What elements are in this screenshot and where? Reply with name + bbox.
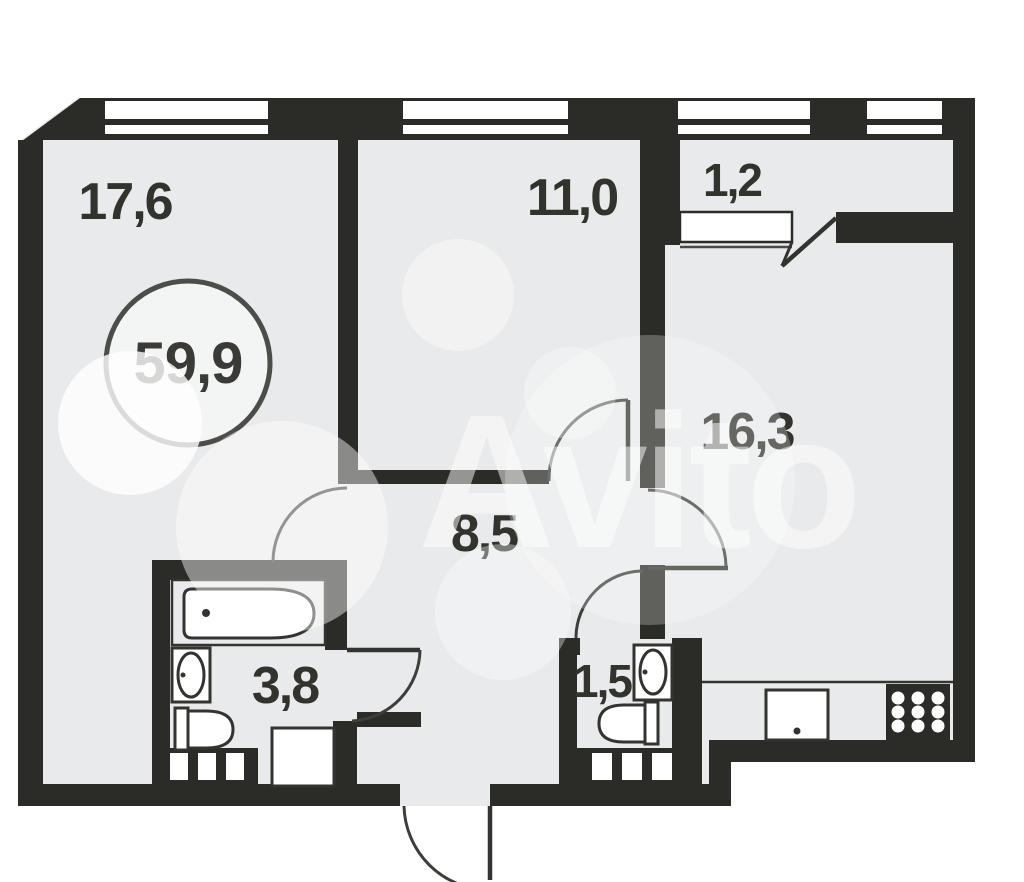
outer-wall-bottom-kitchen [709, 740, 975, 762]
total-area-badge: 59,9 [106, 281, 270, 445]
room-label-bedroom: 11,0 [527, 169, 617, 227]
room-label-balcony: 1,2 [703, 154, 761, 206]
bathtub-drain [202, 609, 210, 617]
room-label-hallway: 8,5 [451, 505, 518, 563]
room-label-living: 17,6 [78, 173, 172, 231]
wc-wall-corner [559, 638, 580, 655]
room-label-wc: 1,5 [573, 655, 632, 707]
window-living [105, 98, 268, 138]
wall-balcony-left [640, 140, 680, 245]
room-label-kitchen: 16,3 [700, 403, 794, 461]
wc-toilet-tank [645, 702, 658, 744]
outer-wall-left [18, 140, 43, 806]
bathroom-wall-top [152, 560, 347, 580]
wc-toilet-icon [599, 705, 645, 742]
window-balcony-right [867, 98, 942, 138]
wc-wall-right [672, 638, 702, 762]
outer-wall-bottom-left [18, 784, 400, 806]
wall-bedroom-hall [338, 470, 549, 484]
bathroom-wall-right-lower [333, 721, 357, 786]
total-area-value: 59,9 [134, 331, 243, 396]
outer-wall-bottom-mid [490, 784, 731, 806]
bathroom-toilet-icon [188, 711, 233, 748]
bathroom-wall-right-upper [325, 580, 347, 650]
outer-wall-right [953, 98, 975, 762]
bathroom-toilet-tank [175, 708, 188, 750]
wall-hall-kitchen-stub [640, 565, 665, 639]
wall-living-bedroom [338, 140, 358, 484]
door-entrance [404, 806, 490, 882]
window-balcony-left [678, 98, 810, 138]
washing-machine-icon [272, 728, 334, 786]
window-bedroom [403, 98, 568, 138]
wall-balcony-right-segment [836, 212, 953, 243]
floor-plan-svg: 17,6 11,0 1,2 16,3 8,5 3,8 1,5 59,9 Avit… [0, 0, 1024, 882]
room-label-bathroom: 3,8 [252, 657, 319, 715]
floor-plan-image: 17,6 11,0 1,2 16,3 8,5 3,8 1,5 59,9 Avit… [0, 0, 1024, 882]
